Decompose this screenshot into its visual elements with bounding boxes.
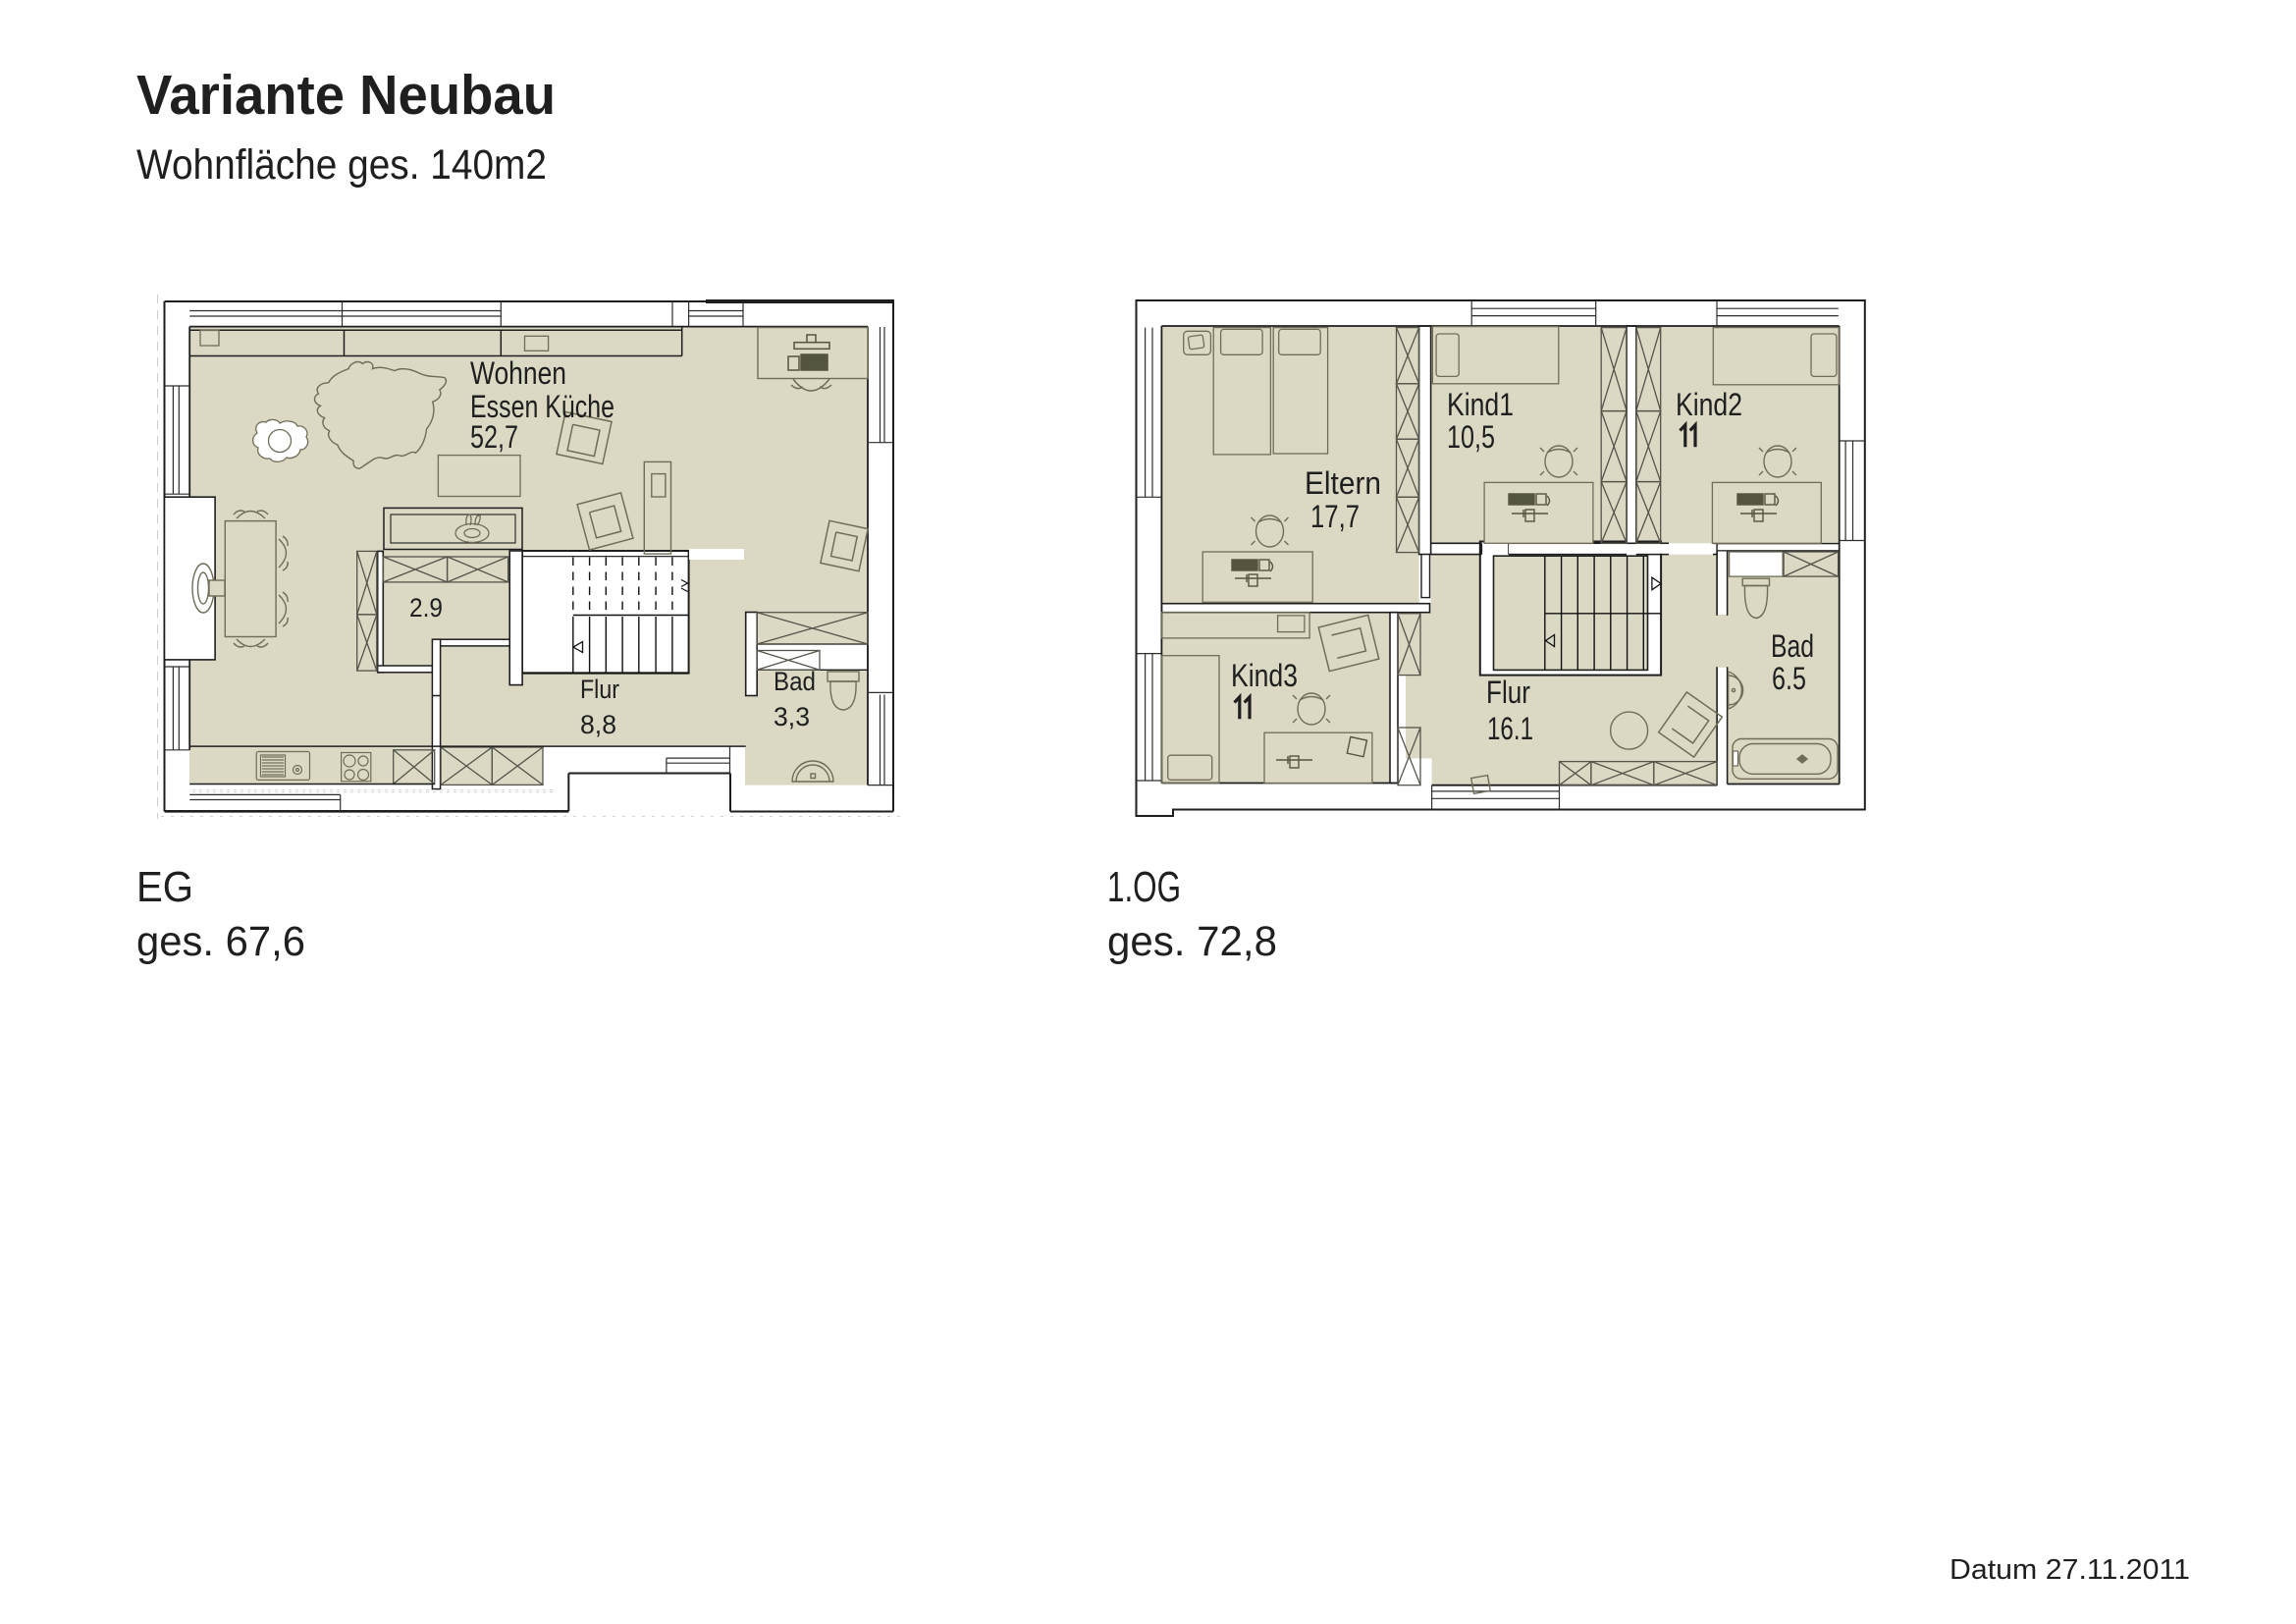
- svg-text:17,7: 17,7: [1310, 499, 1360, 534]
- svg-text:Datum 27.11.2011: Datum 27.11.2011: [1949, 1554, 2190, 1586]
- svg-text:Bad: Bad: [1771, 628, 1814, 664]
- svg-text:ges. 72,8: ges. 72,8: [1107, 918, 1277, 965]
- svg-text:8,8: 8,8: [580, 710, 616, 739]
- svg-text:52,7: 52,7: [470, 419, 518, 455]
- svg-text:10,5: 10,5: [1447, 419, 1495, 455]
- svg-text:2.9: 2.9: [409, 593, 443, 623]
- svg-text:Wohnfläche ges. 140m2: Wohnfläche ges. 140m2: [136, 141, 547, 189]
- svg-text:Wohnen: Wohnen: [470, 355, 566, 391]
- svg-text:Flur: Flur: [580, 675, 619, 704]
- svg-text:Kind1: Kind1: [1447, 387, 1514, 422]
- svg-text:Flur: Flur: [1486, 675, 1530, 710]
- svg-text:ges. 67,6: ges. 67,6: [136, 918, 305, 965]
- svg-text:Bad: Bad: [774, 667, 816, 696]
- svg-text:6.5: 6.5: [1772, 661, 1806, 696]
- svg-text:Kind2: Kind2: [1676, 387, 1742, 422]
- svg-text:1.OG: 1.OG: [1107, 863, 1181, 911]
- svg-text:3,3: 3,3: [774, 702, 810, 731]
- svg-text:16.1: 16.1: [1487, 711, 1533, 746]
- svg-text:Eltern: Eltern: [1305, 465, 1381, 501]
- svg-text:EG: EG: [136, 863, 193, 911]
- svg-text:Kind3: Kind3: [1231, 658, 1298, 693]
- svg-text:Variante Neubau: Variante Neubau: [136, 64, 556, 127]
